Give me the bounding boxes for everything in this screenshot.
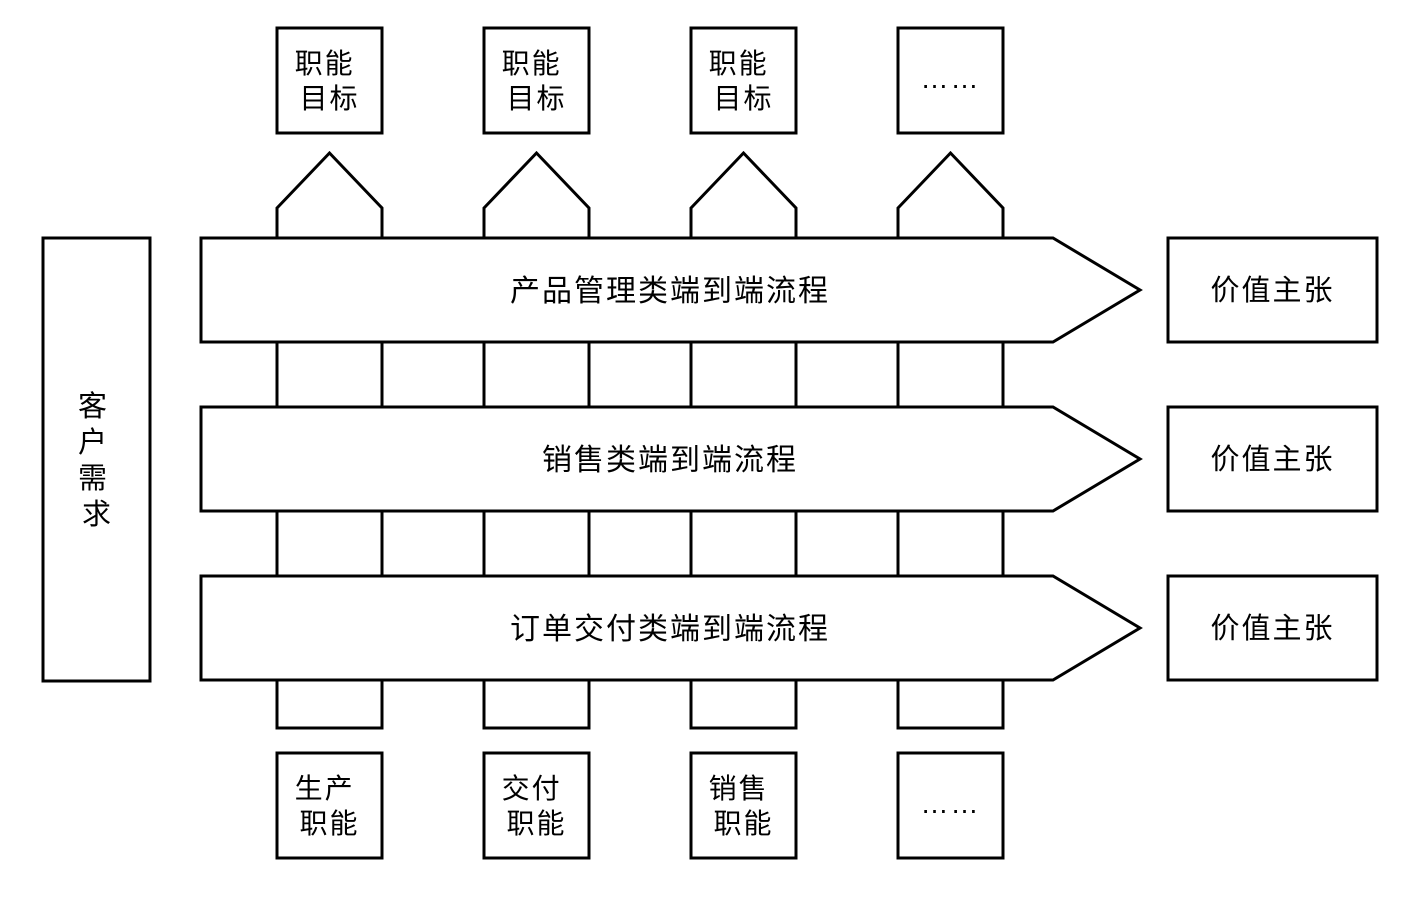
production-function-box xyxy=(277,753,382,858)
process-arrow-1-label: 产品管理类端到端流程 xyxy=(510,275,830,308)
top-goal-boxes: 职能 目标 职能 目标 职能 目标 …… xyxy=(277,28,1003,133)
goal-box-1 xyxy=(277,28,382,133)
value-proposition-label-3: 价值主张 xyxy=(1210,612,1334,645)
value-proposition-label-2: 价值主张 xyxy=(1210,443,1334,476)
value-proposition-label-1: 价值主张 xyxy=(1210,274,1334,307)
goal-box-ellipsis-label: …… xyxy=(921,63,981,94)
customer-needs: 客 户 需 求 xyxy=(43,238,150,681)
process-matrix-diagram: 产品管理类端到端流程 销售类端到端流程 订单交付类端到端流程 职能 目标 职能 … xyxy=(0,0,1404,904)
value-proposition-boxes: 价值主张 价值主张 价值主张 xyxy=(1168,238,1377,680)
delivery-function-box xyxy=(484,753,589,858)
process-arrows: 产品管理类端到端流程 销售类端到端流程 订单交付类端到端流程 xyxy=(201,238,1140,680)
customer-needs-box xyxy=(43,238,150,681)
goal-box-2 xyxy=(484,28,589,133)
sales-function-box xyxy=(691,753,796,858)
process-arrow-3-label: 订单交付类端到端流程 xyxy=(510,613,830,646)
bottom-function-boxes: 生产 职能 交付 职能 销售 职能 …… xyxy=(277,753,1003,858)
bottom-ellipsis-label: …… xyxy=(921,788,981,819)
goal-box-3 xyxy=(691,28,796,133)
process-arrow-2-label: 销售类端到端流程 xyxy=(542,444,798,477)
diagram-canvas: 产品管理类端到端流程 销售类端到端流程 订单交付类端到端流程 职能 目标 职能 … xyxy=(0,0,1404,904)
